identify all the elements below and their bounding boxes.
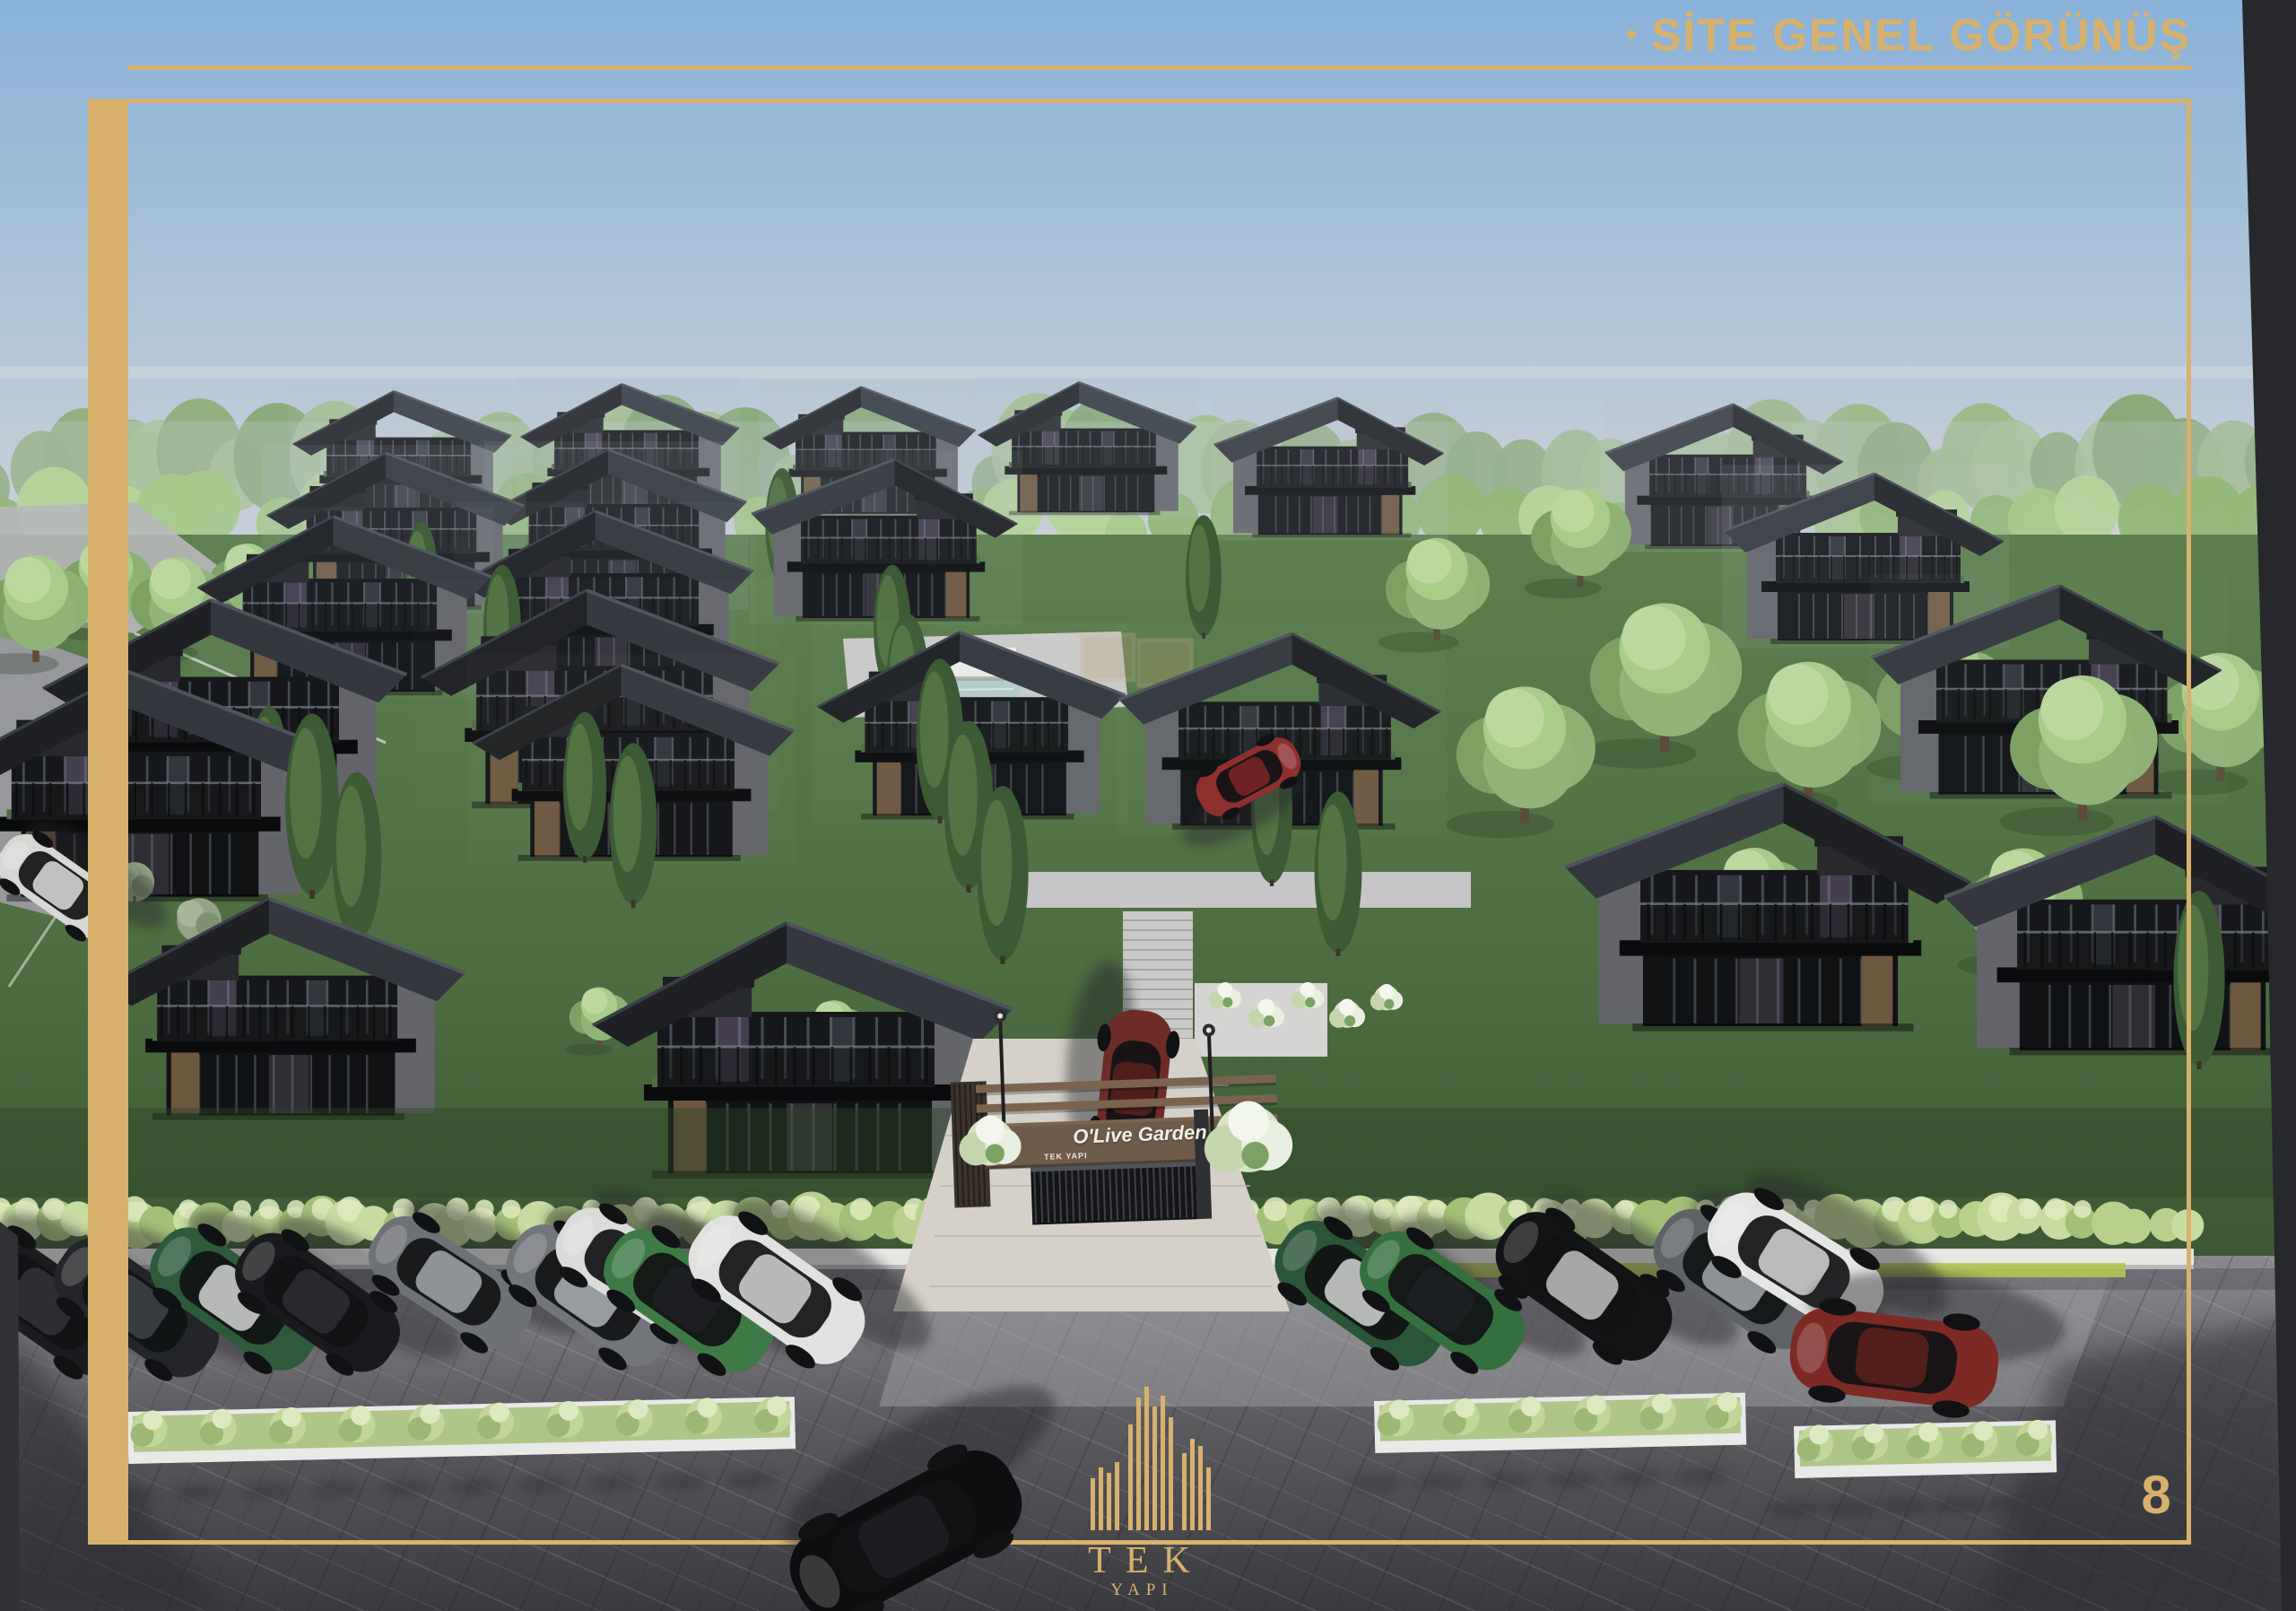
presentation-slide: • SİTE GENEL GÖRÜNÜŞ O'Live Garden TEK Y… (0, 0, 2296, 1611)
site-render (0, 0, 2296, 1611)
